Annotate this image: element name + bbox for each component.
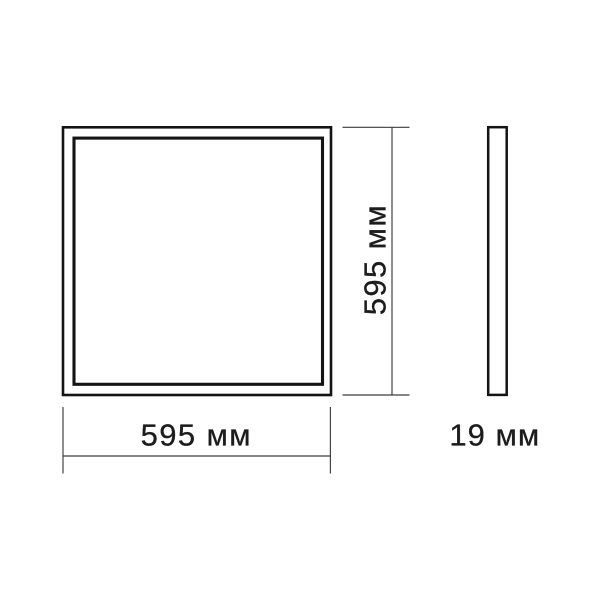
svg-text:595 мм: 595 мм [141,418,252,453]
svg-text:595 мм: 595 мм [358,204,393,315]
svg-text:19 мм: 19 мм [449,418,540,453]
